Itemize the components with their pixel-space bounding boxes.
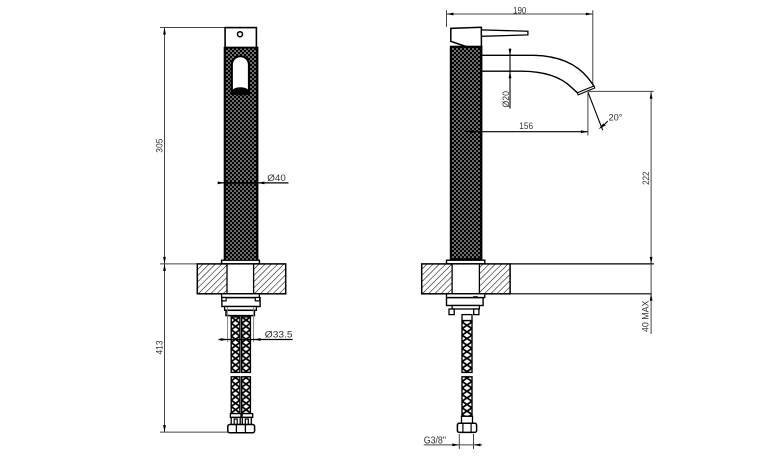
svg-text:G3/8": G3/8" — [424, 435, 447, 446]
svg-text:20°: 20° — [609, 113, 623, 124]
svg-text:Ø40: Ø40 — [267, 173, 286, 184]
svg-text:222: 222 — [641, 172, 652, 185]
svg-text:413: 413 — [155, 341, 166, 355]
svg-text:Ø20: Ø20 — [501, 91, 512, 108]
svg-text:156: 156 — [519, 121, 533, 132]
svg-text:305: 305 — [155, 139, 166, 153]
svg-text:190: 190 — [513, 6, 526, 17]
svg-text:Ø33.5: Ø33.5 — [265, 330, 293, 341]
svg-text:40 MAX: 40 MAX — [641, 300, 652, 332]
